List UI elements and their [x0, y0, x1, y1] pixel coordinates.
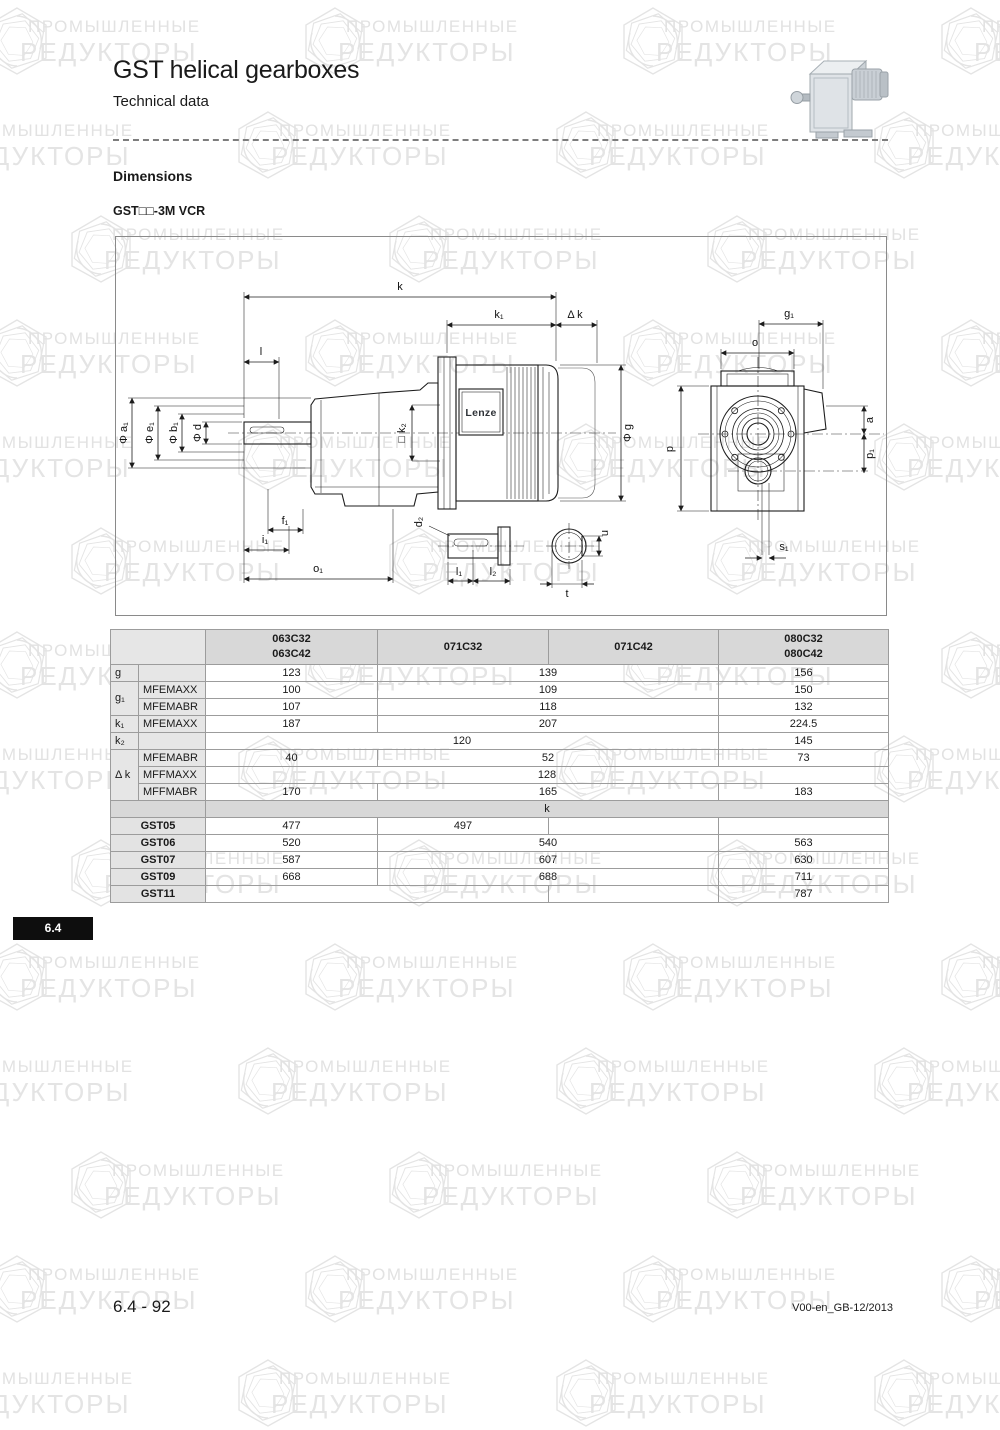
table-cell [549, 818, 719, 835]
row-label-cell: GST06 [111, 835, 206, 852]
dimension-drawing: Lenze k k₁ Δ k l Φ a₁ Φ e [115, 236, 887, 616]
table-cell: 109 [378, 682, 719, 699]
dimensions-table: 063C32 063C42071C32071C42080C32 080C42g1… [110, 629, 889, 903]
chapter-tab: 6.4 [13, 917, 93, 940]
table-cell: 080C32 080C42 [719, 630, 889, 665]
row-label-cell: MFEMAXX [139, 716, 206, 733]
table-cell: 107 [206, 699, 378, 716]
table-cell: 063C32 063C42 [206, 630, 378, 665]
dashed-divider [113, 139, 888, 141]
row-label-cell: GST05 [111, 818, 206, 835]
row-label-cell: MFEMABR [139, 699, 206, 716]
dim-label-k1: k₁ [494, 309, 504, 321]
table-row: MFEMABR107118132 [111, 699, 889, 716]
dim-label-dk: Δ k [567, 309, 583, 321]
section-heading: Dimensions [113, 168, 192, 184]
row-label-cell: MFEMABR [139, 750, 206, 767]
table-cell: 40 [206, 750, 378, 767]
dim-label-g1: g₁ [784, 308, 794, 320]
table-cell: 170 [206, 784, 378, 801]
variant-label: GST□□-3M VCR [113, 204, 205, 218]
table-cell: 187 [206, 716, 378, 733]
table-cell: 520 [206, 835, 378, 852]
row-label-cell: Δ k [111, 750, 139, 801]
table-cell: 711 [719, 869, 889, 886]
dim-label-p: p [664, 446, 676, 452]
table-row: GST07587607630 [111, 852, 889, 869]
table-cell: 630 [719, 852, 889, 869]
table-row: GST09668688711 [111, 869, 889, 886]
dim-label-k2: □ k₂ [396, 423, 408, 442]
table-cell: 132 [719, 699, 889, 716]
table-row: GST11787 [111, 886, 889, 903]
table-row: g₁MFEMAXX100109150 [111, 682, 889, 699]
table-cell: 123 [206, 665, 378, 682]
dim-label-s1: s₁ [779, 541, 789, 553]
table-row: MFFMABR170165183 [111, 784, 889, 801]
table-cell: 120 [206, 733, 719, 750]
page-subtitle: Technical data [113, 93, 209, 110]
dim-label-t: t [565, 588, 568, 600]
row-label-cell: MFFMAXX [139, 767, 206, 784]
dim-label-o1: o₁ [313, 563, 323, 575]
dim-label-l1: l₁ [456, 566, 462, 578]
table-cell: 118 [378, 699, 719, 716]
row-label-cell: k₁ [111, 716, 139, 733]
dim-label-a: a [864, 416, 876, 423]
row-label-cell: g₁ [111, 682, 139, 716]
row-label-cell: GST09 [111, 869, 206, 886]
page-number: 6.4 - 92 [113, 1297, 171, 1317]
table-cell: 688 [378, 869, 719, 886]
table-cell: 156 [719, 665, 889, 682]
dim-label-d2: d₂ [413, 517, 425, 527]
dim-label-k: k [397, 281, 403, 293]
dim-label-i1: i₁ [262, 534, 268, 546]
row-label-cell [111, 630, 206, 665]
table-row: 063C32 063C42071C32071C42080C32 080C42 [111, 630, 889, 665]
table-cell: 139 [378, 665, 719, 682]
dim-label-a1: Φ a₁ [118, 422, 130, 444]
dim-label-f1: f₁ [282, 515, 289, 527]
catalog-page: GST helical gearboxes Technical data Dim… [0, 0, 1000, 1395]
row-label-cell: k₂ [111, 733, 139, 750]
table-cell: 224.5 [719, 716, 889, 733]
row-label-cell: GST11 [111, 886, 206, 903]
dim-label-d: Φ d [192, 424, 204, 442]
table-cell: k [206, 801, 889, 818]
table-cell [206, 886, 549, 903]
table-cell [719, 818, 889, 835]
row-label-cell: g [111, 665, 139, 682]
dim-label-e1: Φ e₁ [144, 422, 156, 444]
table-cell: 563 [719, 835, 889, 852]
table-cell: 165 [378, 784, 719, 801]
table-cell: 540 [378, 835, 719, 852]
dim-label-u: u [599, 530, 611, 536]
table-cell: 497 [378, 818, 549, 835]
table-cell: 477 [206, 818, 378, 835]
table-cell [549, 886, 719, 903]
dim-label-l2: l₂ [490, 566, 497, 578]
row-label-cell [139, 733, 206, 750]
table-cell: 183 [719, 784, 889, 801]
table-cell: 145 [719, 733, 889, 750]
table-row: k [111, 801, 889, 818]
table-cell: 52 [378, 750, 719, 767]
table-cell: 73 [719, 750, 889, 767]
table-row: GST05477497 [111, 818, 889, 835]
doc-version: V00-en_GB-12/2013 [792, 1302, 893, 1314]
table-row: MFFMAXX128 [111, 767, 889, 784]
row-label-cell [139, 665, 206, 682]
table-cell: 668 [206, 869, 378, 886]
dim-label-l: l [260, 346, 262, 358]
table-cell: 787 [719, 886, 889, 903]
table-cell: 071C32 [378, 630, 549, 665]
table-row: g123139156 [111, 665, 889, 682]
table-cell: 071C42 [549, 630, 719, 665]
table-row: k₁MFEMAXX187207224.5 [111, 716, 889, 733]
dim-label-o: o [752, 337, 758, 349]
dim-label-b1: Φ b₁ [168, 422, 180, 444]
table-cell: 607 [378, 852, 719, 869]
row-label-cell: MFFMABR [139, 784, 206, 801]
table-row: GST06520540563 [111, 835, 889, 852]
row-label-cell: MFEMAXX [139, 682, 206, 699]
row-label-cell [111, 801, 206, 818]
page-title: GST helical gearboxes [113, 56, 359, 85]
dim-label-p1: p₁ [864, 449, 876, 459]
table-row: Δ kMFEMABR405273 [111, 750, 889, 767]
dim-label-g: Φ g [622, 424, 634, 442]
table-cell: 100 [206, 682, 378, 699]
table-cell: 150 [719, 682, 889, 699]
row-label-cell: GST07 [111, 852, 206, 869]
table-row: k₂120145 [111, 733, 889, 750]
product-image [790, 44, 894, 148]
table-cell: 587 [206, 852, 378, 869]
table-cell: 128 [206, 767, 889, 784]
motor-brand-label: Lenze [465, 407, 496, 419]
table-cell: 207 [378, 716, 719, 733]
